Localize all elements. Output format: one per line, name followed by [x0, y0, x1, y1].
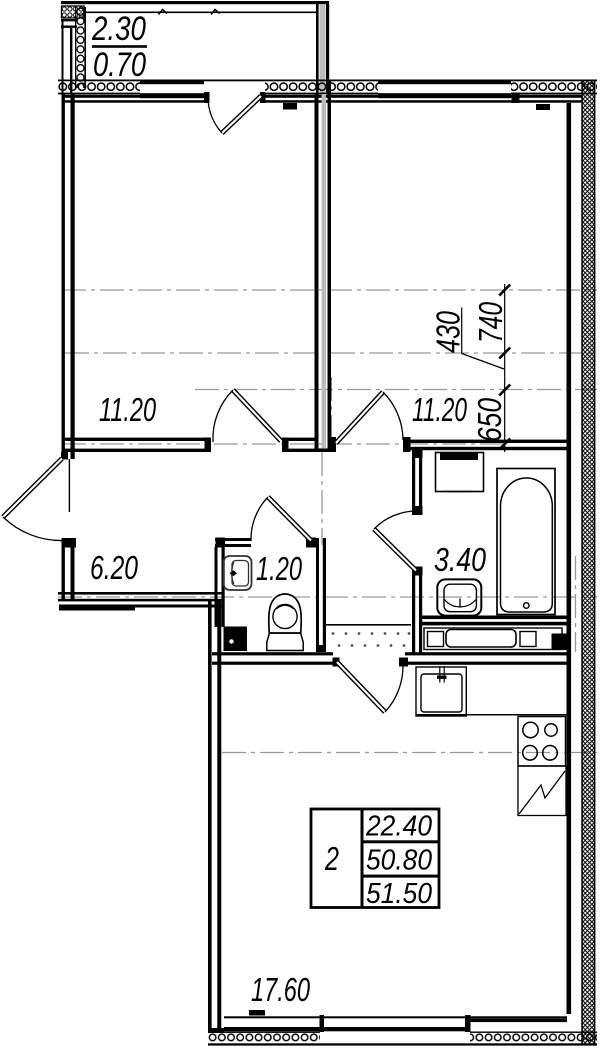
svg-text:2: 2: [324, 840, 339, 877]
svg-text:50.80: 50.80: [366, 845, 432, 877]
svg-text:1.20: 1.20: [256, 550, 302, 587]
svg-text:22.40: 22.40: [365, 811, 432, 843]
svg-text:17.60: 17.60: [251, 971, 310, 1008]
svg-text:11.20: 11.20: [412, 391, 467, 428]
svg-text:3.40: 3.40: [434, 541, 487, 578]
svg-text:0.70: 0.70: [93, 46, 146, 84]
svg-text:51.50: 51.50: [366, 878, 432, 910]
svg-text:6.20: 6.20: [90, 549, 138, 586]
svg-text:11.20: 11.20: [99, 391, 156, 428]
svg-text:2.30: 2.30: [91, 10, 146, 48]
svg-text:650: 650: [471, 397, 508, 442]
svg-text:430: 430: [430, 311, 467, 353]
svg-text:740: 740: [472, 302, 509, 343]
